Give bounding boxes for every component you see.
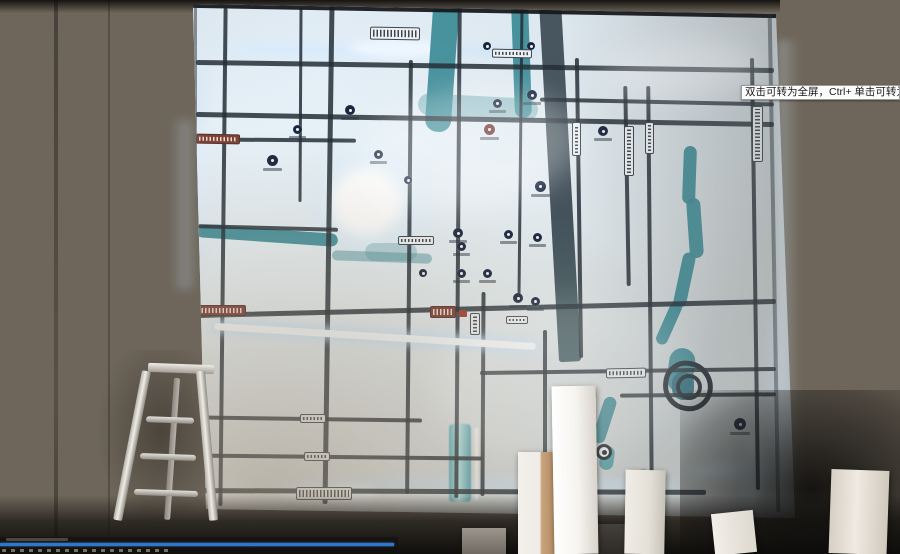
ladder-rung (140, 453, 196, 461)
foreground-column (462, 528, 506, 554)
video-frame[interactable]: 双击可转为全屏，Ctrl+ 单击可转为 (0, 0, 900, 554)
player-text-remnant (6, 538, 68, 541)
ladder-rear-leg (164, 378, 180, 520)
ladder-leg (113, 370, 151, 521)
ladder-leg (196, 371, 218, 521)
foreground-column (552, 386, 599, 554)
wall-seam (54, 0, 58, 554)
foreground-column (829, 469, 890, 554)
ladder-rung (134, 489, 198, 497)
fullscreen-tooltip: 双击可转为全屏，Ctrl+ 单击可转为 (741, 85, 900, 100)
foreground-column (624, 470, 665, 554)
foreground-column (711, 510, 757, 554)
step-ladder (112, 362, 224, 520)
video-progress-bar[interactable] (0, 537, 398, 554)
progress-line (0, 543, 394, 546)
player-text-remnant (2, 549, 172, 552)
led-light-spill (176, 120, 194, 290)
ladder-rung (146, 416, 194, 424)
fullscreen-tooltip-text: 双击可转为全屏，Ctrl+ 单击可转为 (745, 86, 900, 98)
